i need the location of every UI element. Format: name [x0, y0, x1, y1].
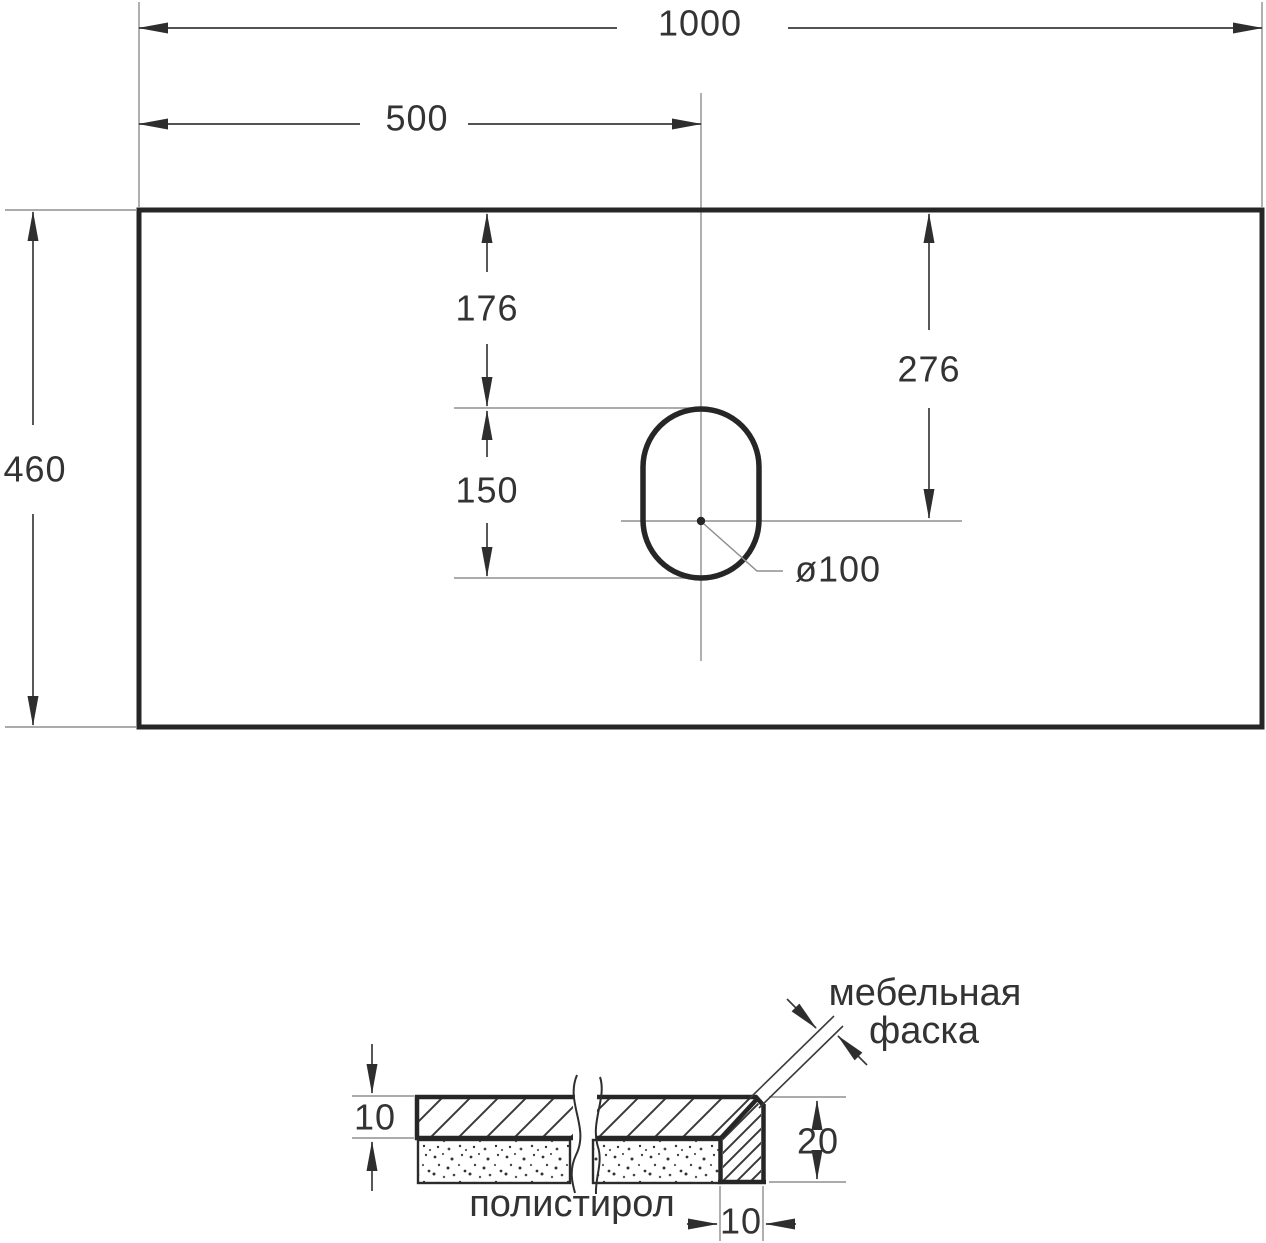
dim-edge-height: 20	[797, 1101, 839, 1179]
filler-label: полистирол	[469, 1183, 675, 1225]
dim-center-offset-value: 500	[385, 98, 448, 139]
dim-edge-height-value: 20	[797, 1121, 839, 1162]
dim-depth: 460	[3, 212, 66, 725]
dim-overall-width: 1000	[139, 3, 1262, 44]
chamfer-extension-line-1	[750, 1016, 834, 1098]
dim-overall-width-value: 1000	[658, 3, 742, 44]
chamfer-arrow-upper	[787, 999, 816, 1028]
dim-top-thickness-value: 10	[354, 1097, 396, 1138]
hole-diameter-leader-line	[704, 524, 783, 571]
drawing-svg: 1000 500 460 176 150	[0, 0, 1266, 1243]
dim-top-thickness: 10	[354, 1044, 396, 1191]
dim-edge-width: 10	[687, 1201, 796, 1242]
slab-hatch-left	[419, 1099, 573, 1136]
break-line-left	[572, 1075, 581, 1193]
dim-hole-center-offset: 276	[897, 214, 960, 518]
dim-center-offset: 500	[139, 98, 701, 139]
dim-hole-length: 150	[455, 411, 518, 576]
section-view: 10 20 10 мебельная фаска полистирол	[352, 972, 1021, 1242]
technical-drawing-canvas: 1000 500 460 176 150	[0, 0, 1266, 1243]
top-view: 1000 500 460 176 150	[3, 2, 1262, 727]
extension-lines	[5, 2, 1262, 727]
chamfer-callout: мебельная фаска	[750, 972, 1021, 1108]
dim-hole-top-offset-value: 176	[455, 288, 518, 329]
hole-center-dot	[697, 517, 705, 525]
polystyrene-strip-left	[418, 1140, 570, 1183]
dim-hole-length-value: 150	[455, 470, 518, 511]
chamfer-extension-line-2	[759, 1026, 843, 1108]
dim-depth-value: 460	[3, 449, 66, 490]
dim-edge-width-value: 10	[720, 1201, 762, 1242]
chamfer-arrow-lower	[838, 1036, 867, 1065]
polystyrene-strip-right	[593, 1140, 720, 1183]
dim-hole-diameter-value: ø100	[795, 549, 881, 590]
dim-hole-diameter: ø100	[704, 524, 881, 590]
chamfer-label-line1: мебельная	[829, 972, 1022, 1014]
dim-hole-center-offset-value: 276	[897, 349, 960, 390]
dim-hole-top-offset: 176	[455, 214, 518, 406]
chamfer-label-line2: фаска	[869, 1010, 980, 1052]
